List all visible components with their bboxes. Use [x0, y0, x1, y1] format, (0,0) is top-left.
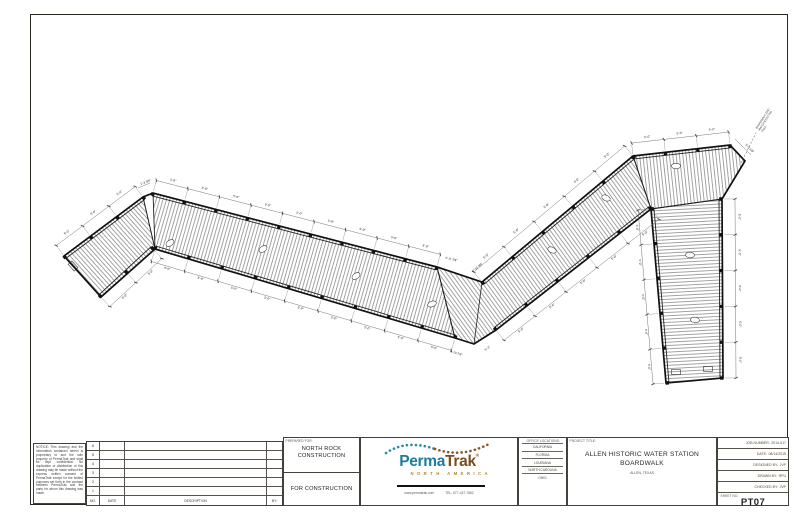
svg-text:5'-0": 5'-0" — [738, 250, 742, 256]
office-locations-label: OFFICE LOCATIONS: — [519, 438, 566, 443]
svg-text:5'-0": 5'-0" — [116, 189, 123, 196]
sheet-number-value: PT07 — [718, 497, 788, 508]
drawn-by-row: DRAWN BY: RPU — [718, 471, 788, 482]
svg-text:5'-0": 5'-0" — [297, 305, 304, 311]
checked-by-value: JVP — [780, 485, 786, 489]
revision-header-description: DESCRIPTION — [125, 496, 267, 505]
svg-text:5'-0": 5'-0" — [738, 285, 742, 291]
sheet-number-row: SHEET NO. PT07 — [718, 493, 788, 505]
revision-row: 2 — [87, 478, 282, 487]
end-annotation: BOARDWALK ENDMATCH EXISTINGTRAIL — [741, 108, 776, 163]
prepared-for-label: PREPARED FOR: — [284, 438, 359, 443]
registered-mark: ® — [476, 453, 479, 458]
revision-table: 654321 NO. DATE DESCRIPTION BY: — [86, 441, 283, 506]
project-title-label: PROJECT TITLE: — [568, 438, 716, 443]
svg-text:4'-10 3/8": 4'-10 3/8" — [471, 262, 483, 273]
brand-trak: Trak — [445, 453, 476, 470]
project-location: ALLEN, TEXAS — [568, 471, 716, 475]
revision-row: 5 — [87, 451, 282, 460]
svg-text:5'-0": 5'-0" — [676, 131, 683, 136]
checked-by-label: CHECKED BY: — [755, 485, 779, 489]
svg-text:5'-0": 5'-0" — [517, 327, 524, 334]
job-number-row: JOB NUMBER: 2014-017 — [718, 438, 788, 449]
revision-number: 1 — [87, 487, 100, 495]
svg-text:5'-0": 5'-0" — [647, 364, 652, 370]
svg-text:5'-0": 5'-0" — [170, 178, 177, 183]
job-number-label: JOB NUMBER: — [746, 441, 770, 445]
svg-text:5'-0": 5'-0" — [391, 235, 398, 240]
drawn-by-label: DRAWN BY: — [758, 474, 778, 478]
revision-number: 5 — [87, 451, 100, 459]
revision-header-by: BY: — [267, 496, 282, 505]
permatrak-logo-block: PermaTrak® NORTH AMERICA www.permatrak.c… — [360, 437, 518, 506]
office-location-item: LOUISIANA — [522, 458, 563, 466]
svg-text:5'-0": 5'-0" — [738, 357, 742, 363]
svg-text:4'-11 7/8": 4'-11 7/8" — [445, 256, 458, 263]
svg-text:5'-0": 5'-0" — [482, 253, 489, 260]
svg-text:5'-0": 5'-0" — [610, 254, 617, 261]
legal-note: NOTICE: This drawing and the information… — [33, 443, 86, 504]
svg-text:5'-0": 5'-0" — [147, 269, 154, 276]
date-row: DATE: 08/14/2015 — [718, 449, 788, 460]
svg-text:5'-0": 5'-0" — [364, 325, 371, 331]
designed-by-label: DESIGNED BY: — [753, 463, 778, 467]
svg-text:5'-0": 5'-0" — [548, 302, 555, 309]
client-name-line2: CONSTRUCTION — [284, 453, 359, 460]
svg-text:4'-10 7/8": 4'-10 7/8" — [450, 349, 463, 356]
svg-text:5'-0": 5'-0" — [330, 315, 337, 321]
revision-number: 3 — [87, 469, 100, 477]
svg-text:5'-0": 5'-0" — [296, 210, 303, 215]
svg-text:5'-0": 5'-0" — [201, 186, 208, 191]
svg-text:5'-0": 5'-0" — [327, 219, 334, 224]
office-locations-block: OFFICE LOCATIONS: CALIFORNIAFLORIDALOUIS… — [518, 437, 567, 506]
designed-by-value: JVP — [780, 463, 786, 467]
revision-rows: 654321 — [87, 442, 282, 496]
revision-row: 4 — [87, 460, 282, 469]
brand-wordmark: PermaTrak® — [361, 453, 517, 471]
revision-header-date: DATE — [100, 496, 125, 505]
svg-text:5'-0": 5'-0" — [63, 229, 70, 236]
designed-by-row: DESIGNED BY: JVP — [718, 460, 788, 471]
brand-subtitle: NORTH AMERICA — [410, 471, 491, 476]
project-title-block: PROJECT TITLE: ALLEN HISTORIC WATER STAT… — [567, 437, 717, 506]
revision-row: 6 — [87, 442, 282, 451]
svg-text:5'-0": 5'-0" — [264, 296, 271, 302]
svg-text:5'-0": 5'-0" — [573, 177, 580, 184]
svg-text:5'-0": 5'-0" — [603, 152, 610, 159]
project-title-line2: BOARDWALK — [568, 460, 716, 469]
svg-text:5'-0": 5'-0" — [233, 194, 240, 199]
revision-number: 4 — [87, 460, 100, 468]
svg-text:5'-0": 5'-0" — [709, 127, 716, 132]
office-location-item: FLORIDA — [522, 451, 563, 459]
office-location-item: CALIFORNIA — [522, 443, 563, 451]
checked-by-row: CHECKED BY: JVP — [718, 482, 788, 493]
svg-text:5'-0": 5'-0" — [644, 329, 649, 335]
svg-text:5'-0": 5'-0" — [635, 224, 640, 230]
revision-row: 1 — [87, 487, 282, 496]
date-value: 08/14/2015 — [768, 452, 786, 456]
project-title-line1: ALLEN HISTORIC WATER STATION — [568, 451, 716, 460]
svg-text:5'-0": 5'-0" — [543, 202, 550, 209]
svg-text:5'-0": 5'-0" — [264, 202, 271, 207]
svg-text:5'-3": 5'-3" — [484, 345, 491, 352]
svg-text:5'-0": 5'-0" — [638, 259, 643, 265]
website-text: www.permatrak.com — [404, 491, 434, 495]
revision-number: 6 — [87, 442, 100, 450]
svg-text:5'-0": 5'-0" — [641, 230, 648, 237]
svg-text:5'-0": 5'-0" — [430, 345, 437, 351]
svg-text:5'-0": 5'-0" — [230, 286, 237, 292]
svg-text:5'-0": 5'-0" — [737, 214, 741, 220]
svg-text:5'-0": 5'-0" — [359, 227, 366, 232]
office-list: CALIFORNIAFLORIDALOUISIANANORTH CAROLINA… — [519, 443, 566, 481]
svg-text:5'-0": 5'-0" — [197, 276, 204, 282]
svg-text:5'-0": 5'-0" — [641, 294, 646, 300]
drawn-by-value: RPU — [779, 474, 786, 478]
logo-underline — [397, 485, 485, 487]
revision-number: 2 — [87, 478, 100, 486]
date-label: DATE: — [757, 452, 767, 456]
svg-text:5'-0": 5'-0" — [644, 135, 651, 140]
revision-header: NO. DATE DESCRIPTION BY: — [87, 496, 282, 505]
job-number-value: 2014-017 — [771, 441, 786, 445]
svg-text:5'-0": 5'-0" — [422, 243, 429, 248]
phone-text: TEL: 877-437-7862 — [445, 491, 473, 495]
svg-text:5'-0": 5'-0" — [121, 293, 128, 300]
sheet-info-block: JOB NUMBER: 2014-017 DATE: 08/14/2015 DE… — [717, 437, 789, 506]
logo-contact: www.permatrak.com TEL: 877-437-7862 — [361, 491, 517, 495]
svg-text:5'-0 1/8": 5'-0 1/8" — [745, 143, 755, 154]
svg-text:5'-0": 5'-0" — [738, 321, 742, 327]
client-name: NORTH ROCK CONSTRUCTION — [284, 446, 359, 460]
svg-text:5'-0": 5'-0" — [397, 335, 404, 341]
revision-header-no: NO. — [87, 496, 100, 505]
office-location-item: NORTH CAROLINA — [522, 466, 563, 474]
svg-text:5'-0": 5'-0" — [164, 266, 171, 272]
svg-text:5'-0": 5'-0" — [579, 278, 586, 285]
office-location-item: OHIO — [522, 473, 563, 481]
svg-text:5'-0": 5'-0" — [89, 209, 96, 216]
svg-text:5'-0": 5'-0" — [513, 227, 520, 234]
project-title: ALLEN HISTORIC WATER STATION BOARDWALK — [568, 451, 716, 469]
prepared-for-block: PREPARED FOR: NORTH ROCK CONSTRUCTION FO… — [283, 437, 360, 506]
issue-status: FOR CONSTRUCTION — [284, 472, 359, 505]
client-name-line1: NORTH ROCK — [284, 446, 359, 453]
revision-row: 3 — [87, 469, 282, 478]
brand-perma: Perma — [399, 453, 445, 470]
